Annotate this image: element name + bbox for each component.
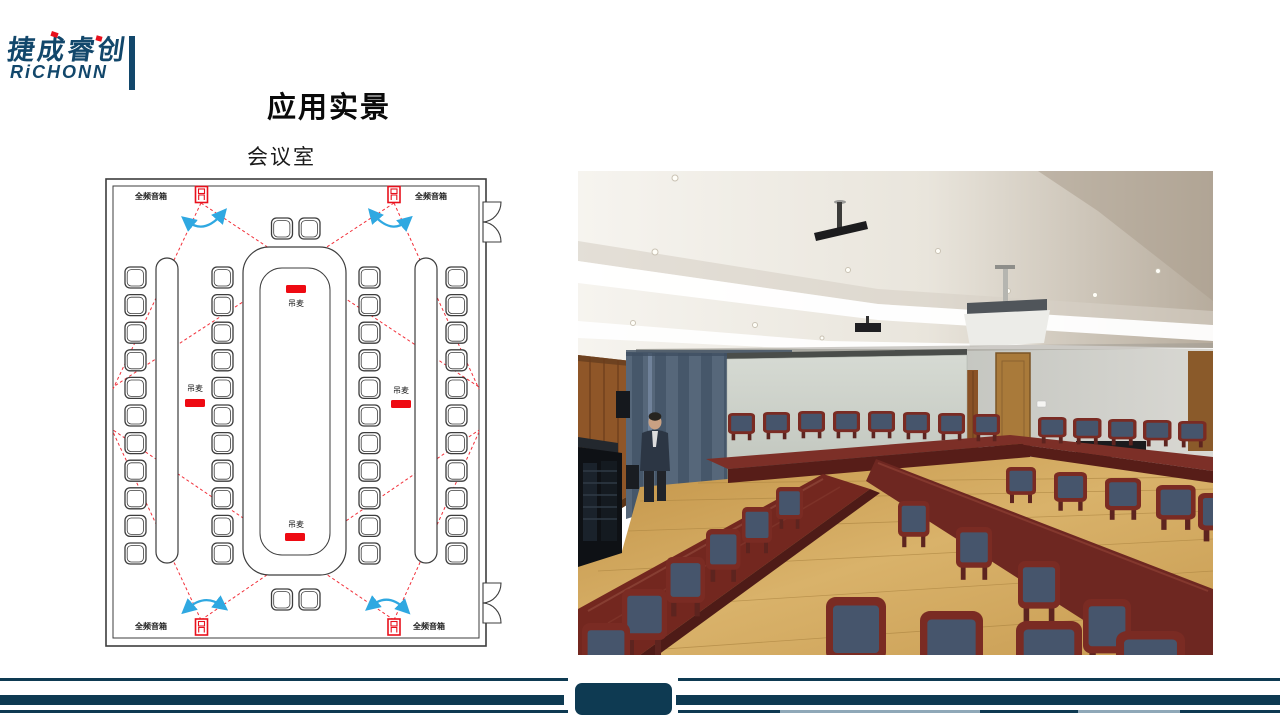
speaker-icon	[388, 187, 400, 203]
logo-vertical-bar	[129, 36, 135, 90]
page-subtitle: 会议室	[247, 141, 316, 171]
speaker-label: 全频音箱	[414, 191, 447, 201]
speaker-icon	[388, 619, 400, 635]
slide: 捷成睿创 RiCHONN 应用实景 会议室	[0, 0, 1280, 720]
mic-label: 吊麦	[288, 519, 304, 529]
speaker-label: 全频音箱	[412, 621, 445, 631]
photo-ceiling	[578, 171, 1213, 367]
footer-thick-bar-left	[0, 695, 564, 705]
mic-label: 吊麦	[288, 298, 304, 308]
footer-thin-line-right-top	[678, 678, 1280, 681]
speaker-icon	[196, 187, 208, 203]
company-logo: 捷成睿创 RiCHONN	[0, 0, 160, 100]
footer-thin-line-left-bottom	[0, 710, 568, 713]
logo-english-text: RiCHONN	[10, 62, 108, 83]
mic-label: 吊麦	[187, 383, 203, 393]
mic-icon	[285, 533, 305, 541]
mic-icon	[185, 399, 205, 407]
room-layout-diagram: 全频音箱 全频音箱 全频音箱 全频音箱 吊麦 吊麦 吊麦 吊麦	[103, 175, 503, 650]
mic-icon	[286, 285, 306, 293]
footer-light-segment	[1078, 710, 1180, 713]
photo-wall-speaker	[616, 391, 630, 418]
conference-room-photo	[578, 171, 1213, 655]
speaker-label: 全频音箱	[134, 621, 167, 631]
mic-label: 吊麦	[393, 385, 409, 395]
footer-thin-line-left-top	[0, 678, 568, 681]
mic-icon	[391, 400, 411, 408]
page-title: 应用实景	[267, 84, 391, 126]
footer-center-pill	[575, 683, 672, 715]
speaker-label: 全频音箱	[134, 191, 167, 201]
footer-light-segment	[780, 710, 980, 713]
footer-thick-bar-right	[676, 695, 1280, 705]
speaker-icon	[196, 619, 208, 635]
